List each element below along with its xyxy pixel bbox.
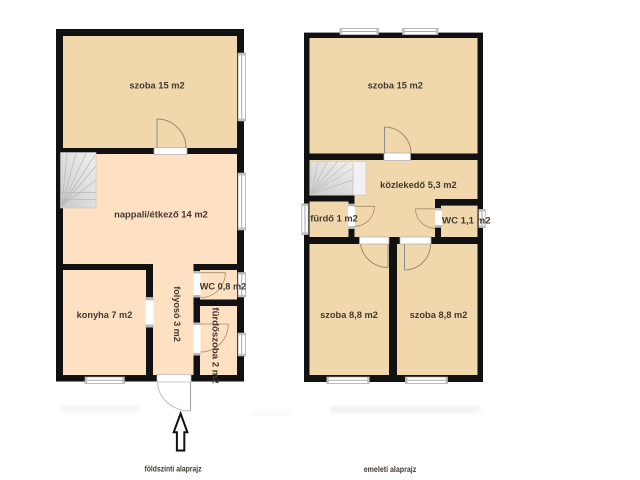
svg-text:konyha 7 m2: konyha 7 m2	[77, 310, 133, 320]
svg-text:szoba 8,8 m2: szoba 8,8 m2	[410, 310, 468, 320]
svg-text:folyosó 3 m2: folyosó 3 m2	[172, 286, 182, 342]
svg-text:nappali/étkező 14 m2: nappali/étkező 14 m2	[114, 208, 208, 219]
svg-text:WC 0,8 m2: WC 0,8 m2	[200, 282, 246, 292]
svg-text:fürdőszoba 2 m2: fürdőszoba 2 m2	[210, 307, 221, 383]
svg-text:szoba 15 m2: szoba 15 m2	[129, 80, 184, 90]
svg-text:földszinti alaprajz: földszinti alaprajz	[145, 464, 202, 474]
svg-text:szoba 15 m2: szoba 15 m2	[368, 81, 423, 91]
svg-text:közlekedő 5,3 m2: közlekedő 5,3 m2	[380, 180, 456, 190]
svg-text:szoba 8,8 m2: szoba 8,8 m2	[320, 310, 378, 320]
svg-text:fürdő 1 m2: fürdő 1 m2	[310, 214, 358, 224]
svg-text:WC 1,1 m2: WC 1,1 m2	[442, 215, 491, 226]
svg-text:emeleti alaprajz: emeleti alaprajz	[364, 464, 417, 474]
